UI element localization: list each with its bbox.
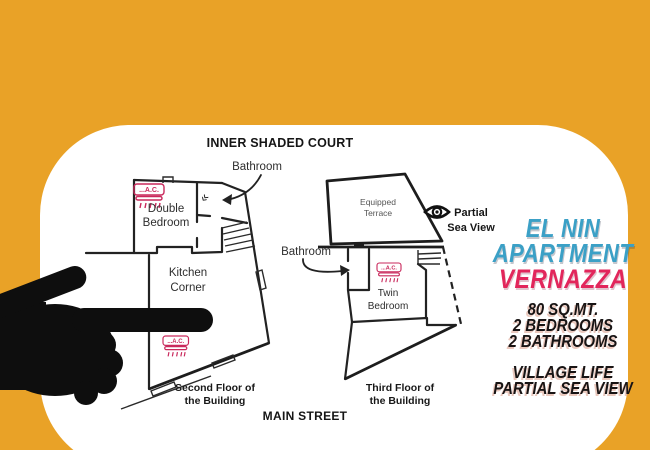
pointing-hand-icon <box>0 0 650 450</box>
flyer-background: » ...A.C. ...A.C. <box>0 0 650 450</box>
